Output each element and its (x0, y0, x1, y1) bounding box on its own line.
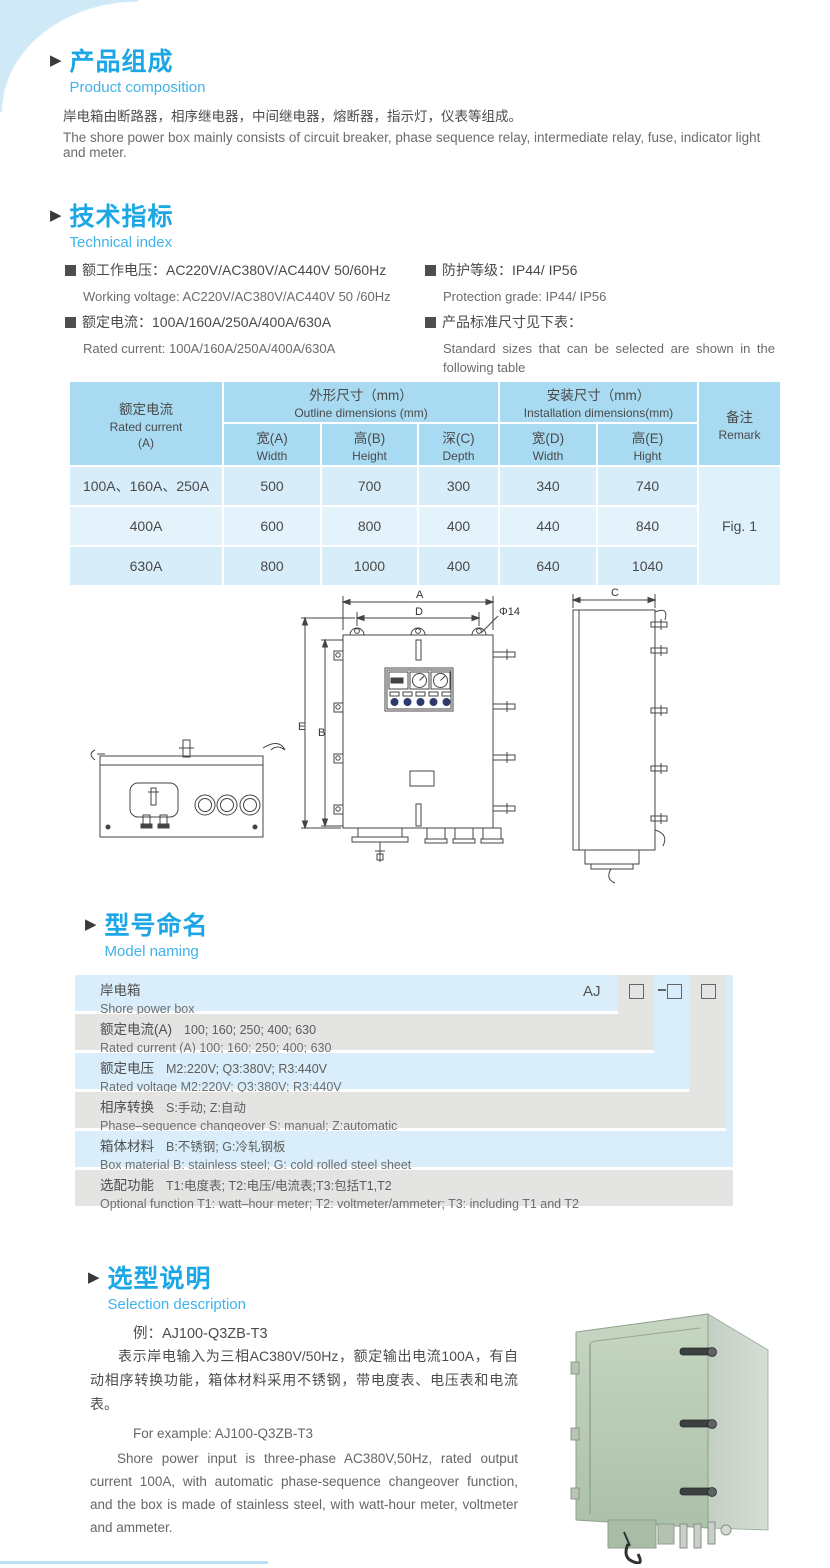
spec-working-voltage: 额工作电压：AC220V/AC380V/AC440V 50/60Hz Worki… (65, 260, 405, 306)
table-cell: 800 (322, 507, 417, 545)
spec-en-text: Rated current: 100A/160A/250A/400A/630A (83, 339, 405, 358)
bottom-edge-rule (0, 1561, 268, 1564)
th-height-b: 高(B) Height (322, 424, 417, 465)
naming-row-rated-current: 额定电流(A)100; 160; 250; 400; 630 Rated cur… (75, 1014, 654, 1050)
th-rated-current-cn: 额定电流 (119, 398, 173, 418)
th-height-e: 高(E) Hight (598, 424, 697, 465)
section-technical-header: ▶ 技术指标 Technical index (50, 203, 174, 251)
naming-row-optional-function: 选配功能T1:电度表; T2:电压/电流表;T3:包括T1,T2 Optiona… (75, 1170, 733, 1206)
th-cn: 宽(D) (532, 427, 564, 447)
selection-title-en: Selection description (108, 1296, 246, 1313)
spec-en-text: Standard sizes that can be selected are … (443, 339, 775, 377)
row-label-cn: 额定电压 (100, 1061, 154, 1076)
th-en: Width (257, 449, 288, 463)
table-cell: 440 (500, 507, 596, 545)
th-rated-current-unit: (A) (138, 436, 154, 450)
th-en: Height (352, 449, 387, 463)
section-arrow-icon: ▶ (50, 48, 62, 74)
naming-row-box-material: 箱体材料B:不锈钢; G:冷轧钢板 Box material B: stainl… (75, 1131, 733, 1167)
section-selection-header: ▶ 选型说明 Selection description (88, 1265, 246, 1313)
row-label-cn: 选配功能 (100, 1178, 154, 1193)
row-label-cn: 相序转换 (100, 1100, 154, 1115)
th-remark-cn: 备注 (726, 406, 753, 426)
table-cell: 340 (500, 467, 596, 505)
selection-example-en: For example: AJ100-Q3ZB-T3 (133, 1422, 313, 1445)
composition-title-cn: 产品组成 (70, 48, 206, 76)
th-depth-c: 深(C) Depth (419, 424, 498, 465)
th-outline-cn: 外形尺寸（mm） (309, 384, 413, 404)
outline-drawing: A D Φ14 E B C (55, 578, 785, 908)
composition-title-en: Product composition (70, 79, 206, 96)
th-installation-dimensions: 安装尺寸（mm） Installation dimensions(mm) (500, 382, 697, 422)
table-cell: 500 (224, 467, 320, 505)
th-width-d: 宽(D) Width (500, 424, 596, 465)
th-cn: 宽(A) (256, 427, 288, 447)
spec-en-text: Protection grade: IP44/ IP56 (443, 287, 775, 306)
selection-body-cn: 表示岸电输入为三相AC380V/50Hz，额定输出电流100A，有自动相序转换功… (90, 1344, 518, 1416)
dimension-table: 额定电流 Rated current (A) 外形尺寸（mm） Outline … (70, 382, 780, 585)
row-detail-cn: T1:电度表; T2:电压/电流表;T3:包括T1,T2 (166, 1179, 392, 1193)
table-cell: 840 (598, 507, 697, 545)
model-naming-title-cn: 型号命名 (105, 912, 209, 940)
square-bullet-icon (425, 317, 436, 328)
dim-label-d: D (415, 606, 423, 618)
section-arrow-icon: ▶ (85, 912, 97, 938)
section-arrow-icon: ▶ (88, 1265, 100, 1291)
th-outline-en: Outline dimensions (mm) (294, 406, 427, 420)
spec-cn-text: 额定电流：100A/160A/250A/400A/630A (82, 312, 331, 332)
selection-title-cn: 选型说明 (108, 1265, 246, 1293)
square-bullet-icon (65, 317, 76, 328)
table-cell: 100A、160A、250A (70, 467, 222, 505)
th-en: Depth (442, 449, 474, 463)
dim-label-b: B (318, 727, 325, 739)
code-dash (658, 989, 666, 991)
th-install-cn: 安装尺寸（mm） (547, 384, 651, 404)
th-remark-en: Remark (718, 428, 760, 442)
th-outline-dimensions: 外形尺寸（mm） Outline dimensions (mm) (224, 382, 498, 422)
product-photo (540, 1292, 802, 1564)
naming-row-rated-voltage: 额定电压M2:220V; Q3:380V; R3:440V Rated volt… (75, 1053, 689, 1089)
spec-en-text: Working voltage: AC220V/AC380V/AC440V 50… (83, 287, 405, 306)
composition-body-en: The shore power box mainly consists of c… (63, 130, 773, 160)
th-en: Width (533, 449, 564, 463)
th-install-en: Installation dimensions(mm) (524, 406, 673, 420)
model-naming-diagram: 岸电箱 Shore power box 额定电流(A)100; 160; 250… (75, 975, 733, 1205)
th-en: Hight (633, 449, 661, 463)
model-naming-title-en: Model naming (105, 943, 209, 960)
row-detail-cn: B:不锈钢; G:冷轧钢板 (166, 1140, 285, 1154)
table-cell-remark: Fig. 1 (699, 467, 780, 585)
th-width-a: 宽(A) Width (224, 424, 320, 465)
table-cell: 400 (419, 507, 498, 545)
square-bullet-icon (65, 265, 76, 276)
row-detail-cn: M2:220V; Q3:380V; R3:440V (166, 1062, 327, 1076)
dim-label-e: E (298, 721, 305, 733)
spec-rated-current: 额定电流：100A/160A/250A/400A/630A Rated curr… (65, 312, 405, 358)
th-cn: 高(B) (354, 427, 386, 447)
dim-label-a: A (416, 589, 424, 601)
row-detail-cn: S:手动; Z:自动 (166, 1101, 246, 1115)
square-bullet-icon (425, 265, 436, 276)
spec-cn-text: 产品标准尺寸见下表： (442, 312, 582, 332)
table-cell: 300 (419, 467, 498, 505)
composition-body-cn: 岸电箱由断路器，相序继电器，中间继电器，熔断器，指示灯，仪表等组成。 (63, 105, 763, 125)
dim-label-c: C (611, 587, 619, 599)
th-remark: 备注 Remark (699, 382, 780, 465)
code-box-current (629, 984, 644, 999)
table-cell: 740 (598, 467, 697, 505)
th-cn: 深(C) (442, 427, 474, 447)
naming-row-phase-sequence: 相序转换S:手动; Z:自动 Phase–sequence changeover… (75, 1092, 726, 1128)
th-rated-current: 额定电流 Rated current (A) (70, 382, 222, 465)
section-arrow-icon: ▶ (50, 203, 62, 229)
th-rated-current-en: Rated current (110, 420, 183, 434)
technical-title-cn: 技术指标 (70, 203, 174, 231)
technical-title-en: Technical index (70, 234, 174, 251)
spec-protection-grade: 防护等级：IP44/ IP56 Protection grade: IP44/ … (425, 260, 775, 306)
model-prefix: AJ (583, 983, 601, 1000)
section-model-naming-header: ▶ 型号命名 Model naming (85, 912, 209, 960)
datasheet-page: { "colors":{ "accent_title":"#1ba7e5","a… (0, 0, 830, 1568)
spec-cn-text: 防护等级：IP44/ IP56 (442, 260, 577, 280)
selection-example-cn: 例：AJ100-Q3ZB-T3 (133, 1322, 268, 1343)
row-detail-en: T1: watt–hour meter; T2: voltmeter/ammet… (197, 1197, 579, 1211)
row-label-en: Optional function (100, 1197, 194, 1211)
selection-body-en: Shore power input is three-phase AC380V,… (90, 1447, 518, 1539)
table-cell: 400A (70, 507, 222, 545)
th-cn: 高(E) (632, 427, 664, 447)
spec-standard-sizes: 产品标准尺寸见下表： Standard sizes that can be se… (425, 312, 775, 377)
section-composition-header: ▶ 产品组成 Product composition (50, 48, 205, 96)
table-cell: 600 (224, 507, 320, 545)
row-detail-cn: 100; 160; 250; 400; 630 (184, 1023, 316, 1037)
row-label-cn: 额定电流(A) (100, 1022, 172, 1037)
dim-label-hole: Φ14 (499, 606, 520, 618)
code-box-phase (701, 984, 716, 999)
table-cell: 700 (322, 467, 417, 505)
row-label-cn: 箱体材料 (100, 1139, 154, 1154)
model-code-row: AJ (75, 975, 733, 1011)
spec-cn-text: 额工作电压：AC220V/AC380V/AC440V 50/60Hz (82, 260, 386, 280)
code-box-voltage (667, 984, 682, 999)
